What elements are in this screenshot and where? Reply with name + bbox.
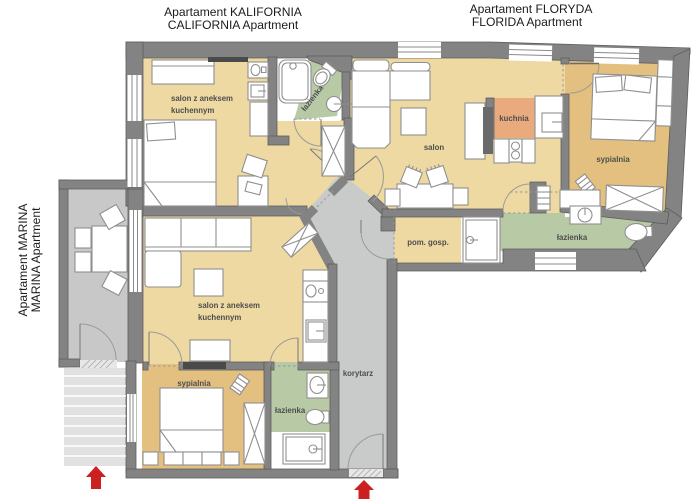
svg-text:salon z aneksem: salon z aneksem [171,94,233,103]
svg-text:sypialnia: sypialnia [596,155,630,164]
svg-text:FLORIDA Apartment: FLORIDA Apartment [472,15,583,29]
svg-text:łazienka: łazienka [557,233,588,242]
svg-text:Apartament MARINA: Apartament MARINA [16,203,30,317]
svg-text:korytarz: korytarz [343,369,373,378]
svg-text:łazienka: łazienka [275,406,306,415]
svg-text:kuchnia: kuchnia [499,114,529,123]
svg-text:kuchennym: kuchennym [171,106,214,115]
svg-text:pom. gosp.: pom. gosp. [407,238,449,247]
svg-text:salon: salon [424,143,445,152]
svg-text:kuchennym: kuchennym [198,313,241,322]
svg-text:MARINA Apartment: MARINA Apartment [29,207,43,312]
svg-text:salon z aneksem: salon z aneksem [198,301,260,310]
svg-text:Apartament KALIFORNIA: Apartament KALIFORNIA [164,5,303,19]
svg-text:CALIFORNIA Apartment: CALIFORNIA Apartment [168,18,299,32]
svg-text:sypialnia: sypialnia [177,379,211,388]
svg-text:Apartament FLORYDA: Apartament FLORYDA [470,2,594,16]
